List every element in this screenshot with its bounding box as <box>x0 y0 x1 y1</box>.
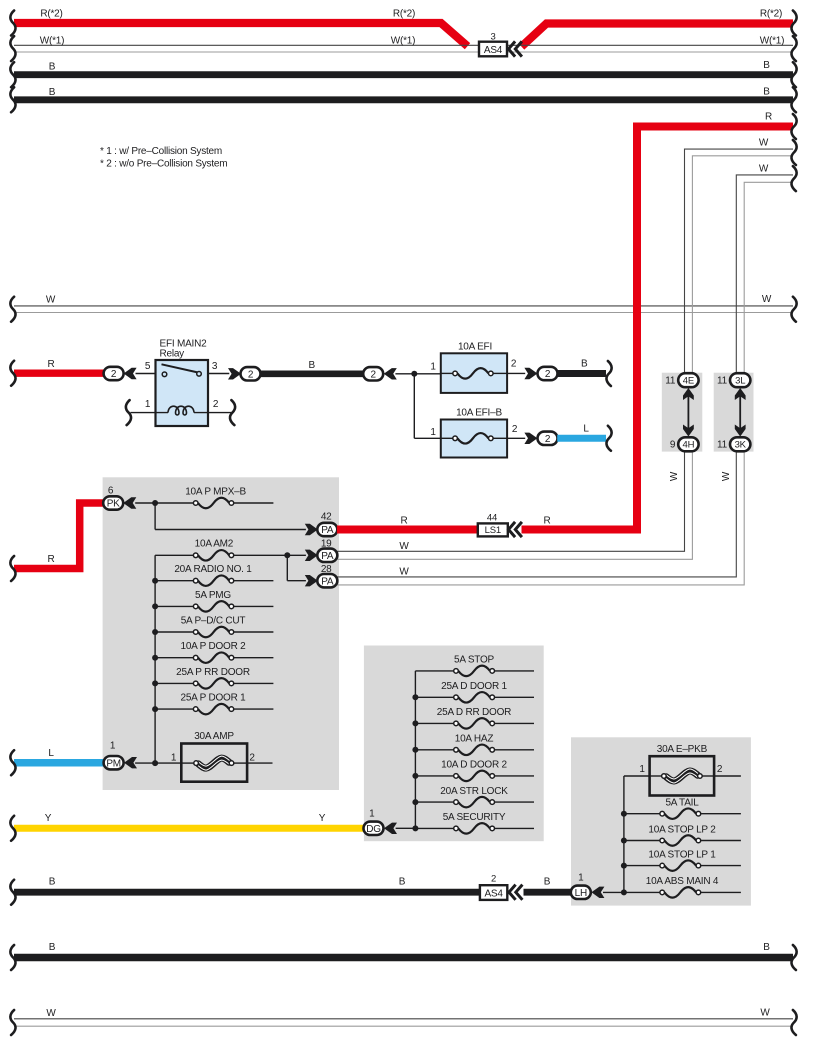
svg-text:L: L <box>48 748 54 759</box>
svg-text:AS4: AS4 <box>484 45 503 56</box>
svg-text:LH: LH <box>575 888 587 899</box>
svg-text:2: 2 <box>371 369 377 380</box>
svg-text:PA: PA <box>321 576 334 587</box>
svg-text:3: 3 <box>490 32 495 43</box>
svg-text:11: 11 <box>665 376 676 387</box>
svg-text:1: 1 <box>145 399 151 410</box>
svg-text:B: B <box>49 87 56 98</box>
svg-text:R: R <box>543 515 550 526</box>
svg-text:10A STOP LP 2: 10A STOP LP 2 <box>648 824 716 835</box>
svg-text:B: B <box>763 87 770 98</box>
svg-text:Y: Y <box>45 813 52 824</box>
svg-text:2: 2 <box>111 369 117 380</box>
svg-text:5A TAIL: 5A TAIL <box>665 798 699 809</box>
svg-text:R(*2): R(*2) <box>40 9 62 20</box>
svg-text:2: 2 <box>545 369 551 380</box>
svg-text:1: 1 <box>578 873 584 884</box>
svg-text:4E: 4E <box>683 376 694 387</box>
svg-text:25A D RR DOOR: 25A D RR DOOR <box>437 707 511 718</box>
svg-text:10A HAZ: 10A HAZ <box>455 734 494 745</box>
svg-text:5A STOP: 5A STOP <box>454 655 495 666</box>
svg-text:B: B <box>49 876 56 887</box>
svg-text:2: 2 <box>717 764 723 775</box>
svg-text:3K: 3K <box>735 440 747 451</box>
svg-text:* 2 : w/o Pre–Collision System: * 2 : w/o Pre–Collision System <box>100 159 227 170</box>
svg-text:10A EFI–B: 10A EFI–B <box>456 408 502 419</box>
svg-text:11: 11 <box>717 440 728 451</box>
svg-text:R: R <box>47 554 54 565</box>
svg-text:2: 2 <box>249 752 255 763</box>
svg-text:W: W <box>759 138 769 149</box>
svg-text:10A D DOOR 2: 10A D DOOR 2 <box>441 760 507 771</box>
svg-text:R(*2): R(*2) <box>393 9 415 20</box>
svg-text:2: 2 <box>213 399 219 410</box>
svg-text:10A EFI: 10A EFI <box>458 341 492 352</box>
svg-text:1: 1 <box>369 809 375 820</box>
svg-text:Y: Y <box>319 813 326 824</box>
svg-text:25A D DOOR 1: 25A D DOOR 1 <box>441 681 507 692</box>
svg-text:9: 9 <box>670 440 676 451</box>
svg-text:5A P–D/C CUT: 5A P–D/C CUT <box>181 616 246 627</box>
svg-text:W: W <box>669 471 680 481</box>
svg-text:W(*1): W(*1) <box>391 36 415 47</box>
svg-text:1: 1 <box>430 362 436 373</box>
svg-text:W: W <box>759 163 769 174</box>
svg-text:W: W <box>46 1008 56 1019</box>
svg-text:19: 19 <box>321 539 332 550</box>
svg-text:W: W <box>46 295 56 306</box>
svg-text:10A P DOOR 2: 10A P DOOR 2 <box>181 641 247 652</box>
svg-text:1: 1 <box>639 764 645 775</box>
svg-text:PM: PM <box>106 758 121 769</box>
svg-text:W: W <box>760 1008 770 1019</box>
svg-text:30A E–PKB: 30A E–PKB <box>657 744 708 755</box>
svg-text:Relay: Relay <box>160 348 185 359</box>
svg-text:B: B <box>763 942 770 953</box>
svg-text:10A STOP LP 1: 10A STOP LP 1 <box>648 849 716 860</box>
svg-text:10A ABS MAIN 4: 10A ABS MAIN 4 <box>646 876 719 887</box>
svg-text:2: 2 <box>491 873 496 884</box>
svg-text:42: 42 <box>321 511 332 522</box>
svg-text:10A P MPX–B: 10A P MPX–B <box>185 487 246 498</box>
svg-text:B: B <box>763 60 770 71</box>
svg-text:28: 28 <box>321 564 332 575</box>
svg-text:L: L <box>583 423 589 434</box>
svg-text:2: 2 <box>512 424 518 435</box>
svg-text:* 1 : w/ Pre–Collision System: * 1 : w/ Pre–Collision System <box>100 146 222 157</box>
svg-text:R(*2): R(*2) <box>760 9 782 20</box>
svg-text:20A STR LOCK: 20A STR LOCK <box>440 786 508 797</box>
svg-text:44: 44 <box>487 512 497 523</box>
svg-text:10A AM2: 10A AM2 <box>195 539 234 550</box>
svg-text:LS1: LS1 <box>485 525 501 536</box>
svg-text:W(*1): W(*1) <box>760 36 784 47</box>
svg-text:2: 2 <box>545 434 551 445</box>
svg-text:W: W <box>399 567 409 578</box>
svg-text:5A PMG: 5A PMG <box>195 590 231 601</box>
svg-text:B: B <box>544 876 551 887</box>
svg-text:25A P RR DOOR: 25A P RR DOOR <box>176 667 250 678</box>
svg-text:R: R <box>400 515 407 526</box>
svg-text:30A AMP: 30A AMP <box>194 731 234 742</box>
svg-text:11: 11 <box>717 376 728 387</box>
svg-text:DG: DG <box>366 824 381 835</box>
svg-text:2: 2 <box>248 369 254 380</box>
svg-text:4H: 4H <box>683 440 695 451</box>
svg-text:20A RADIO NO. 1: 20A RADIO NO. 1 <box>174 564 252 575</box>
svg-text:PK: PK <box>107 499 120 510</box>
svg-text:5: 5 <box>145 361 151 372</box>
svg-text:2: 2 <box>511 359 517 370</box>
svg-text:1: 1 <box>110 741 116 752</box>
svg-text:W: W <box>721 471 732 481</box>
svg-text:PA: PA <box>321 551 334 562</box>
svg-text:3: 3 <box>212 361 218 372</box>
svg-text:B: B <box>399 876 406 887</box>
svg-text:B: B <box>308 360 315 371</box>
svg-text:W(*1): W(*1) <box>40 36 64 47</box>
svg-text:25A P DOOR 1: 25A P DOOR 1 <box>181 693 247 704</box>
svg-text:1: 1 <box>171 752 177 763</box>
svg-text:6: 6 <box>108 485 114 496</box>
svg-text:B: B <box>49 62 56 73</box>
svg-text:1: 1 <box>430 427 436 438</box>
svg-text:AS4: AS4 <box>484 888 503 899</box>
svg-text:R: R <box>765 112 772 123</box>
svg-text:W: W <box>399 541 409 552</box>
svg-text:R: R <box>47 359 54 370</box>
svg-text:PA: PA <box>321 525 334 536</box>
svg-text:5A SECURITY: 5A SECURITY <box>443 812 506 823</box>
svg-text:W: W <box>762 294 772 305</box>
svg-text:B: B <box>581 358 588 369</box>
svg-text:B: B <box>49 942 56 953</box>
svg-text:3L: 3L <box>735 376 745 387</box>
